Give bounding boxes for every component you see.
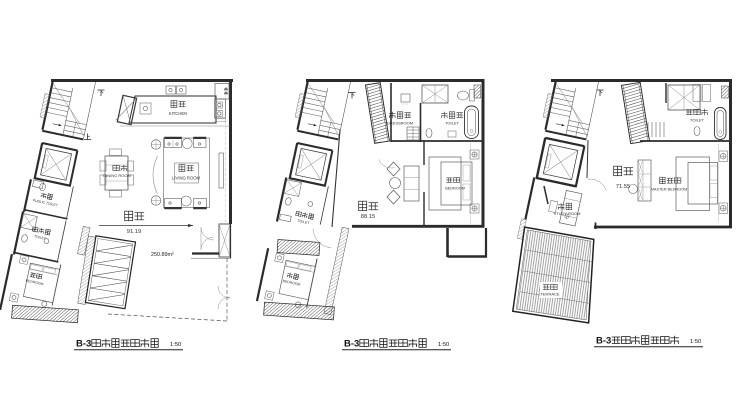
svg-text:1:50: 1:50 [438, 342, 449, 348]
svg-text:TERRACE: TERRACE [540, 292, 559, 297]
svg-text:BEDROOM: BEDROOM [445, 187, 465, 191]
svg-text:B-3: B-3 [76, 338, 91, 349]
svg-text:STUDY ROOM: STUDY ROOM [553, 211, 580, 216]
svg-text:LIVING ROOM: LIVING ROOM [172, 176, 200, 181]
svg-text:1:50: 1:50 [690, 339, 701, 345]
svg-text:71.55: 71.55 [616, 184, 631, 190]
svg-text:MASTER BEDROOM: MASTER BEDROOM [651, 188, 688, 192]
svg-text:TOILET: TOILET [445, 121, 459, 126]
svg-text:DRESSROOM: DRESSROOM [387, 121, 413, 126]
svg-text:KITCHEN: KITCHEN [169, 111, 187, 116]
svg-text:B-3: B-3 [596, 335, 611, 346]
svg-text:1:50: 1:50 [170, 342, 181, 348]
svg-text:250.89m²: 250.89m² [151, 252, 174, 258]
svg-text:TOILET: TOILET [690, 118, 704, 123]
svg-text:91.19: 91.19 [127, 229, 142, 235]
svg-text:B-3: B-3 [344, 338, 359, 349]
svg-text:DINING ROOM: DINING ROOM [103, 173, 131, 178]
svg-text:88.15: 88.15 [361, 214, 376, 220]
